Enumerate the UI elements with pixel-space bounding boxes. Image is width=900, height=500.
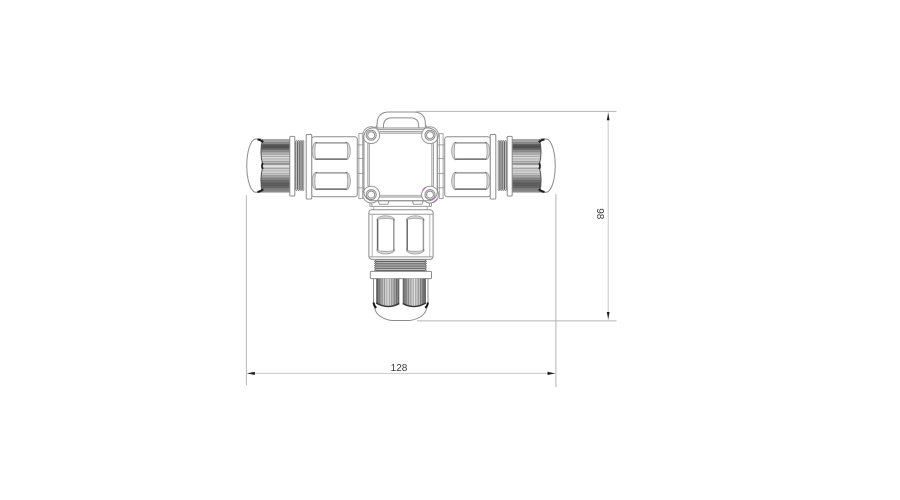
svg-text:98: 98 [594,208,605,220]
svg-text:128: 128 [391,363,408,374]
